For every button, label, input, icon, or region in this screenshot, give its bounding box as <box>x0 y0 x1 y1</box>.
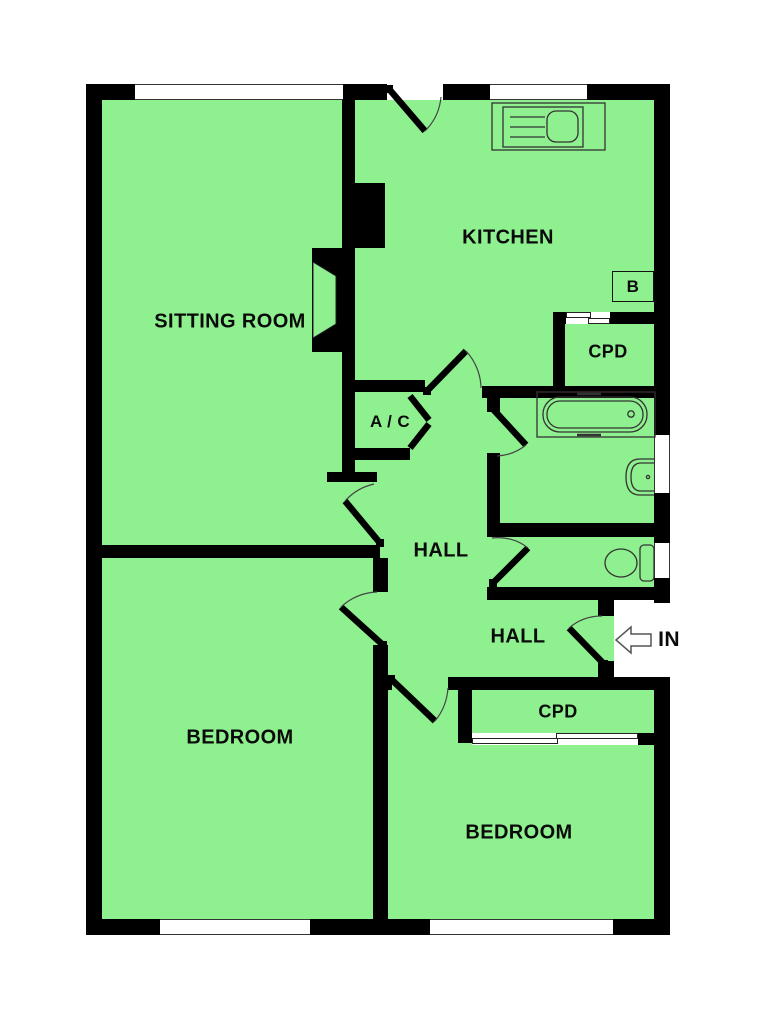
wall <box>654 690 670 935</box>
window <box>430 919 613 935</box>
room-label-sitting-room: SITTING ROOM <box>154 311 305 334</box>
wall <box>487 453 500 523</box>
window <box>160 919 310 935</box>
wall <box>482 386 654 398</box>
wall <box>342 448 410 460</box>
wall <box>598 661 614 677</box>
wall <box>487 398 500 412</box>
room-label-cpd-kitchen: CPD <box>588 342 627 363</box>
wall <box>373 558 388 592</box>
wall <box>342 380 425 392</box>
wall <box>638 733 654 745</box>
room-label-kitchen: KITCHEN <box>462 227 554 250</box>
wall <box>487 523 654 537</box>
wall <box>373 677 392 690</box>
wall <box>598 600 614 616</box>
porch-recess <box>614 600 654 677</box>
room-label-bedroom-left: BEDROOM <box>186 727 293 750</box>
window <box>135 84 343 100</box>
wall <box>86 545 380 558</box>
window <box>654 435 670 493</box>
boiler-label: B <box>627 277 640 297</box>
chimney-breast <box>355 183 385 248</box>
room-label-hall-entrance: HALL <box>491 626 546 649</box>
wall <box>327 472 377 482</box>
entrance-label: IN <box>658 628 680 652</box>
wall <box>553 312 565 392</box>
wall <box>487 587 670 600</box>
wall <box>448 677 670 690</box>
sliding-door-panel <box>588 318 610 324</box>
chimney-breast <box>312 248 343 352</box>
wall <box>654 84 670 603</box>
window <box>654 543 670 578</box>
sliding-door-panel <box>556 733 638 739</box>
sliding-door-panel <box>472 738 558 744</box>
floorplan: SITTING ROOM KITCHEN HALL HALL BEDROOM B… <box>0 0 762 1024</box>
room-label-bedroom-right: BEDROOM <box>465 822 572 845</box>
wall <box>86 84 102 935</box>
room-label-cpd-bedroom: CPD <box>538 702 577 723</box>
room-label-hall-main: HALL <box>414 540 469 563</box>
back-door-opening <box>387 84 443 100</box>
wall <box>342 100 355 472</box>
window <box>490 84 587 100</box>
room-label-airing-cupboard: A / C <box>370 412 410 432</box>
wall <box>458 690 472 743</box>
